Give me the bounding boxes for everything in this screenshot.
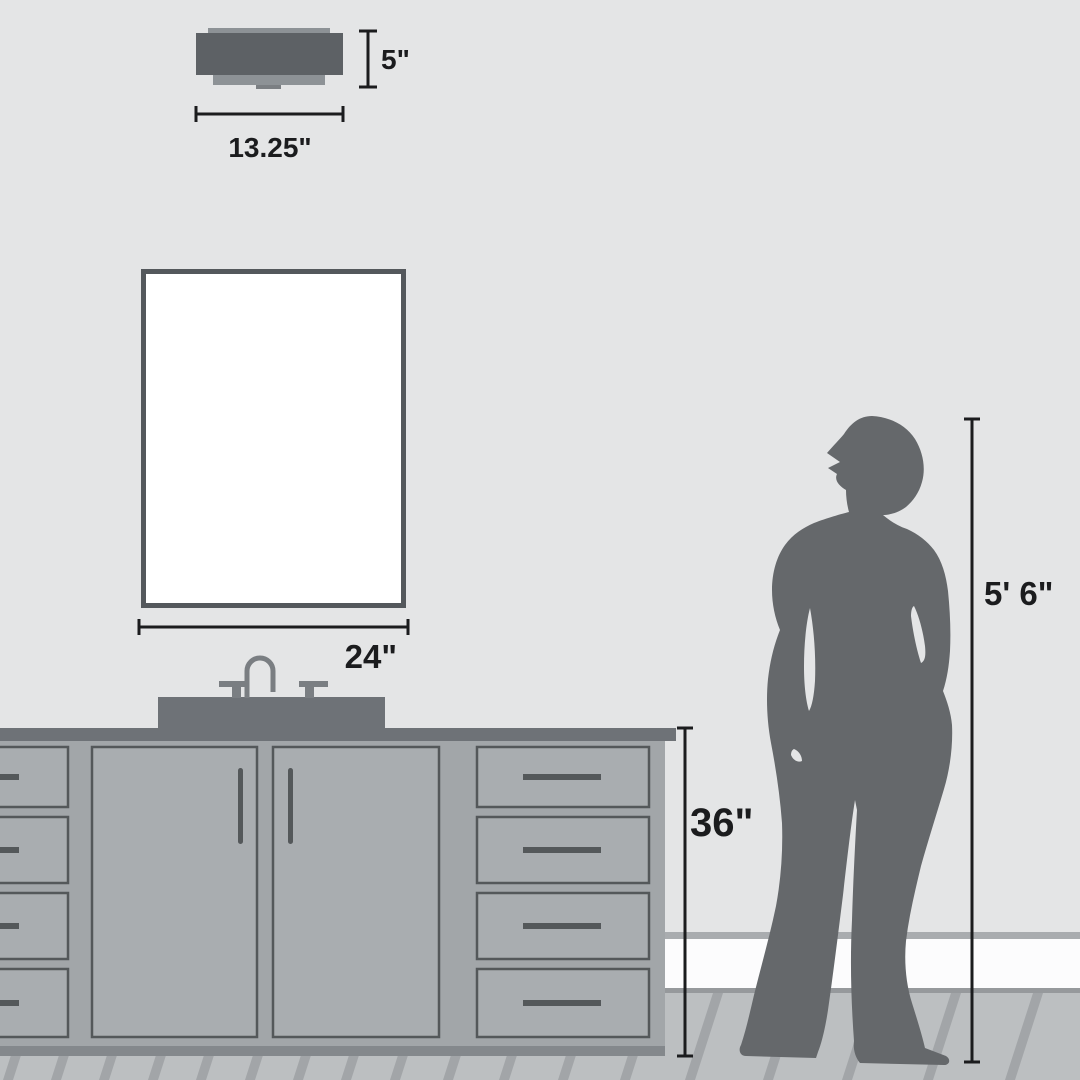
mirror xyxy=(141,269,406,608)
vanity-countertop xyxy=(0,728,676,741)
door-handle-left xyxy=(238,768,243,844)
faucet-handle-bar xyxy=(299,681,328,687)
sink-backsplash xyxy=(158,697,385,731)
fixture-body xyxy=(196,33,343,75)
fixture-height-label: 5" xyxy=(381,44,410,75)
drawer-handle xyxy=(523,923,601,929)
vanity-height-label: 36" xyxy=(690,801,753,845)
faucet-handle-stem xyxy=(305,687,314,698)
drawer-handle xyxy=(0,847,19,853)
vanity-base xyxy=(0,1046,665,1056)
drawer-bank-left xyxy=(0,747,68,1037)
size-comparison-diagram: 5" 13.25" 24" xyxy=(0,0,1080,1080)
cabinet-door-left xyxy=(92,747,257,1037)
drawer-handle xyxy=(523,847,601,853)
ceiling-light-fixture xyxy=(196,28,343,89)
fixture-width-label: 13.25" xyxy=(228,132,311,163)
drawer-bank-right xyxy=(477,747,649,1037)
drawer-handle xyxy=(0,923,19,929)
fixture-finial xyxy=(256,85,281,89)
mirror-glass xyxy=(146,274,401,603)
cabinet-door-right xyxy=(273,747,439,1037)
door-handle-right xyxy=(288,768,293,844)
drawer-handle xyxy=(0,774,19,780)
drawer-handle xyxy=(523,1000,601,1006)
fixture-diffuser xyxy=(213,75,325,85)
faucet-handle-bar xyxy=(219,681,248,687)
mirror-width-label: 24" xyxy=(345,638,397,675)
drawer-handle xyxy=(523,774,601,780)
faucet-handle-stem xyxy=(232,687,241,698)
drawer-handle xyxy=(0,1000,19,1006)
person-height-label: 5' 6" xyxy=(984,575,1053,612)
